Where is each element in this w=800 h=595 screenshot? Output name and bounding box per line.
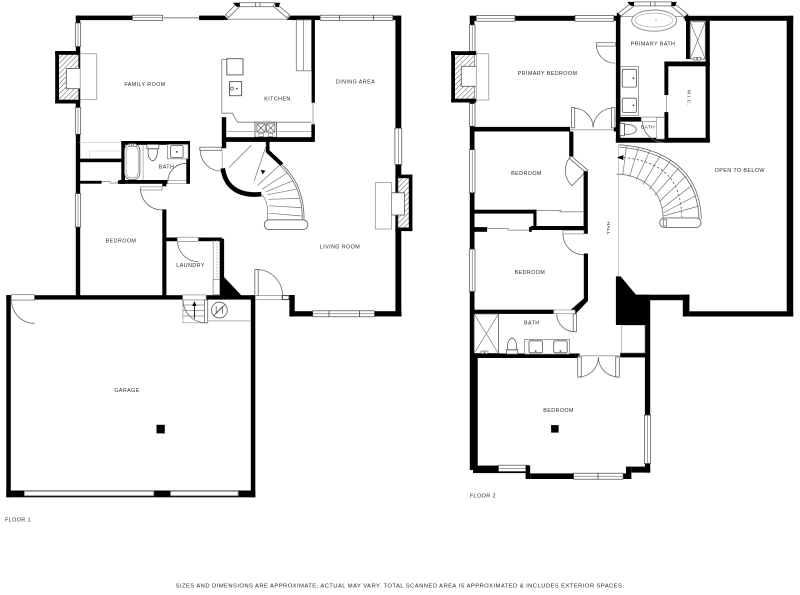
- svg-text:LIVING ROOM: LIVING ROOM: [320, 245, 360, 251]
- svg-text:PRIMARY BATH: PRIMARY BATH: [631, 41, 676, 47]
- svg-text:BEDROOM: BEDROOM: [511, 171, 542, 177]
- svg-text:BEDROOM: BEDROOM: [514, 270, 545, 276]
- svg-text:BATH: BATH: [524, 320, 540, 326]
- svg-text:FLOOR 1: FLOOR 1: [5, 518, 31, 524]
- svg-text:GARAGE: GARAGE: [114, 388, 139, 394]
- svg-text:BATH: BATH: [641, 125, 655, 131]
- svg-text:KITCHEN: KITCHEN: [264, 97, 290, 103]
- svg-text:PRIMARY BEDROOM: PRIMARY BEDROOM: [518, 71, 578, 77]
- svg-text:LAUNDRY: LAUNDRY: [176, 263, 204, 269]
- svg-text:W.I.C.: W.I.C.: [685, 90, 691, 105]
- svg-text:FLOOR 2: FLOOR 2: [470, 494, 496, 500]
- svg-text:OPEN TO BELOW: OPEN TO BELOW: [715, 168, 766, 174]
- svg-text:DINING AREA: DINING AREA: [336, 79, 375, 85]
- svg-text:BATH: BATH: [159, 164, 175, 170]
- svg-text:BEDROOM: BEDROOM: [106, 238, 137, 244]
- svg-text:HALL: HALL: [605, 221, 611, 235]
- svg-text:SIZES AND DIMENSIONS ARE APPRO: SIZES AND DIMENSIONS ARE APPROXIMATE, AC…: [176, 584, 625, 590]
- svg-text:FAMILY ROOM: FAMILY ROOM: [124, 82, 165, 88]
- svg-text:BEDROOM: BEDROOM: [543, 408, 574, 414]
